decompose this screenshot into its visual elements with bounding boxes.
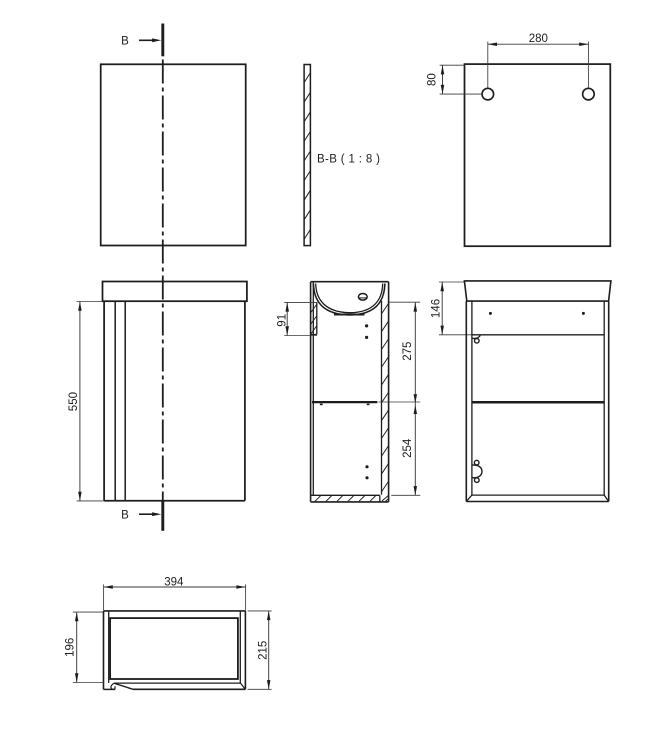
svg-text:275: 275	[402, 342, 414, 361]
svg-text:196: 196	[64, 638, 76, 657]
svg-text:394: 394	[164, 577, 184, 589]
svg-text:254: 254	[402, 438, 414, 458]
svg-text:B-B ( 1 : 8 ): B-B ( 1 : 8 )	[317, 154, 380, 166]
svg-text:91: 91	[276, 314, 288, 327]
svg-text:215: 215	[257, 641, 269, 660]
svg-text:550: 550	[68, 392, 80, 411]
svg-text:146: 146	[430, 299, 442, 318]
svg-text:B: B	[121, 510, 129, 522]
svg-text:80: 80	[427, 73, 439, 86]
svg-text:B: B	[121, 36, 129, 48]
svg-text:280: 280	[529, 33, 548, 45]
